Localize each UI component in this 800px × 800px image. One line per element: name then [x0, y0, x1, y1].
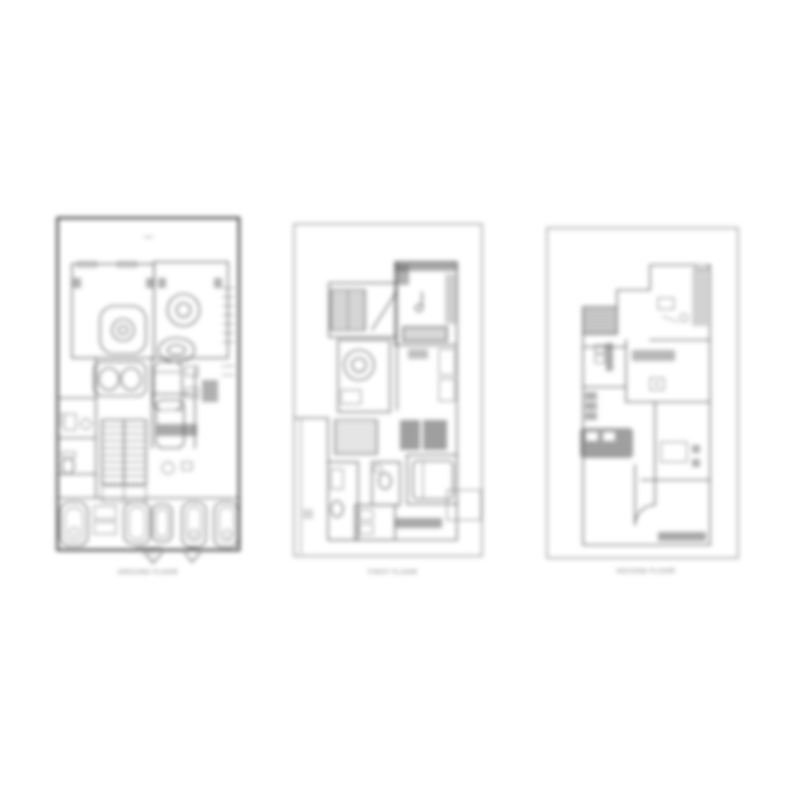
- plan1-scale-note: 1:100: [131, 552, 165, 558]
- plan1-sofa: [72, 358, 195, 396]
- plan1-bedroom: [152, 394, 197, 474]
- plan2-staircase: [335, 420, 377, 454]
- plan3-top-room: [650, 265, 710, 340]
- plan1-living-room: [72, 262, 154, 358]
- floor-plan-1-drawing: [56, 216, 241, 568]
- plan2-bathroom: [372, 462, 400, 505]
- plan2-table-room: [338, 340, 390, 412]
- plan2-caption: FIRST FLOOR: [333, 569, 453, 576]
- plan1-bathrooms: [59, 358, 96, 498]
- plan2-left-balcony: [295, 418, 328, 554]
- plan3-border: [547, 228, 738, 558]
- plan1-dining-room: [154, 262, 228, 362]
- blurred-scene: 1:100 GROUND FLOOR FIRST FLOOR SECOND FL…: [0, 0, 800, 800]
- plan3-mid-room: [626, 340, 710, 402]
- floor-plan-2-drawing: [293, 222, 485, 558]
- floor-plan-3-drawing: [546, 226, 740, 560]
- plan3-balcony-rail: [632, 350, 675, 361]
- floor-plan-panel-3: [546, 226, 740, 560]
- plan3-staircase: [583, 307, 617, 334]
- plan2-mid-room: [408, 349, 455, 401]
- plan3-bottom-room: [635, 465, 706, 541]
- plan2-bedroom: [407, 455, 457, 504]
- plan1-garage: [59, 498, 238, 551]
- plan3-caption: SECOND FLOOR: [586, 568, 706, 575]
- plan2-border: [294, 224, 482, 556]
- plan3-lower-right-room: [641, 402, 710, 505]
- plan1-caption: GROUND FLOOR: [88, 569, 208, 576]
- plan3-kitchen-column: [583, 343, 626, 420]
- plan1-staircase: [102, 420, 146, 502]
- plan2-wc-room: [328, 462, 358, 540]
- floor-plan-panel-1: [56, 216, 241, 568]
- plan2-counters: [400, 420, 447, 450]
- plan2-bottom-details: [328, 490, 481, 540]
- floor-plan-sheet: 1:100 GROUND FLOOR FIRST FLOOR SECOND FL…: [0, 0, 800, 800]
- plan2-closet-room: [355, 505, 395, 540]
- plan3-counter-block: [580, 428, 633, 458]
- floor-plan-panel-2: [293, 222, 485, 558]
